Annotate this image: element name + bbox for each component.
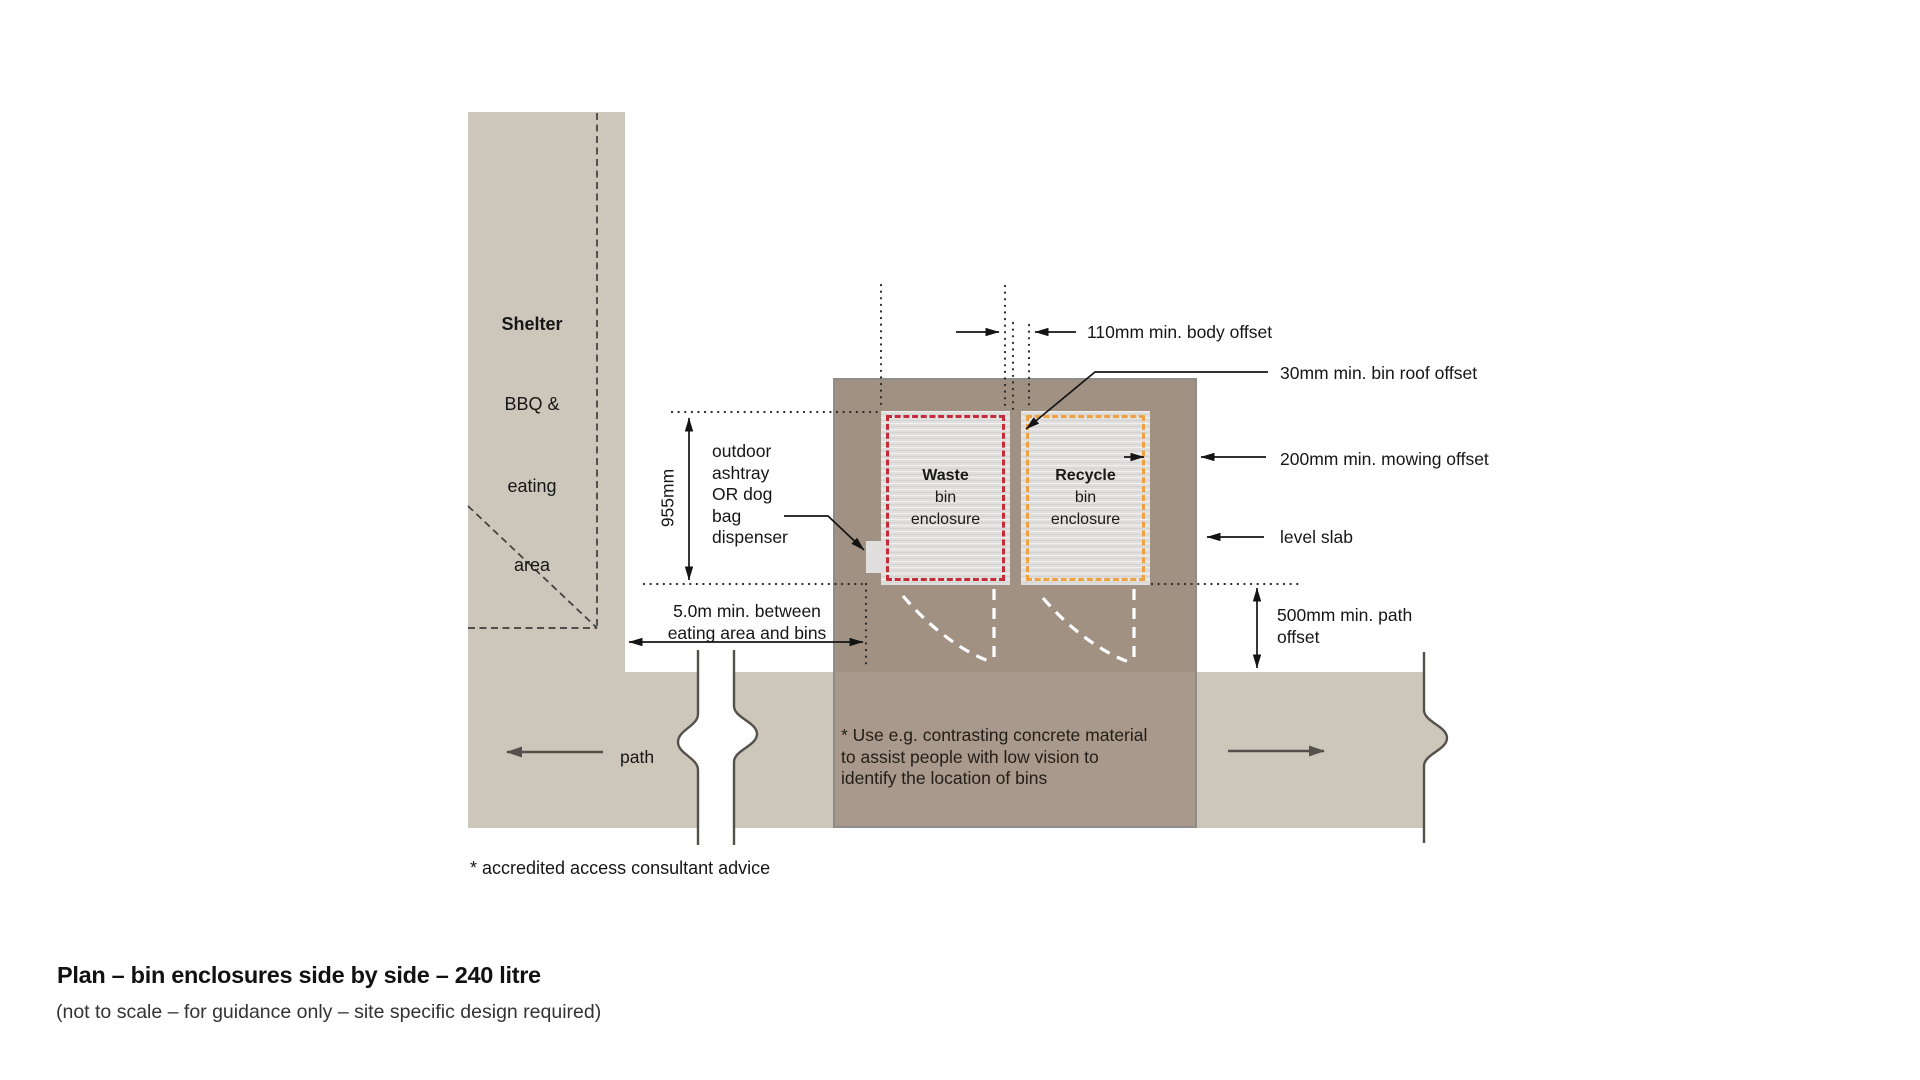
dim-200mm-label: 200mm min. mowing offset [1280, 449, 1489, 471]
plan-diagram-canvas: Waste bin enclosure Recycle bin enclosur… [0, 0, 1920, 1080]
waste-bin-label: Waste bin enclosure [911, 465, 980, 531]
recycle-bin-name: Recycle [1051, 465, 1120, 487]
shelter-eating-area [468, 112, 625, 672]
shelter-label-4: area [514, 555, 550, 577]
recycle-bin-enclosure: Recycle bin enclosure [1021, 411, 1150, 585]
dispenser-label: outdoor ashtray OR dog bag dispenser [712, 441, 788, 549]
ashtray-dispenser-unit [866, 541, 886, 573]
slab-contrast-note: * Use e.g. contrasting concrete material… [841, 725, 1147, 790]
level-slab-label: level slab [1280, 527, 1353, 549]
dim-5m-label: 5.0m min. between eating area and bins [668, 601, 827, 644]
dim-110mm-label: 110mm min. body offset [1087, 322, 1272, 344]
waste-bin-name: Waste [911, 465, 980, 487]
recycle-bin-line2: bin [1051, 487, 1120, 509]
path-break-right-lens [1424, 710, 1447, 766]
dim-500mm-label: 500mm min. path offset [1277, 604, 1412, 648]
recycle-bin-label: Recycle bin enclosure [1051, 465, 1120, 531]
waste-bin-enclosure: Waste bin enclosure [881, 411, 1010, 585]
footnote: * accredited access consultant advice [470, 858, 770, 880]
shelter-label-2: BBQ & [504, 394, 559, 416]
waste-bin-line3: enclosure [911, 509, 980, 531]
dim-30mm-label: 30mm min. bin roof offset [1280, 363, 1477, 385]
shelter-label-1: Shelter [501, 314, 562, 336]
shelter-label-3: eating [507, 476, 556, 498]
page-title: Plan – bin enclosures side by side – 240… [57, 965, 541, 987]
path-band-right [1197, 672, 1424, 828]
dim-955mm-label: 955mm [657, 469, 679, 527]
recycle-bin-line3: enclosure [1051, 509, 1120, 531]
waste-bin-line2: bin [911, 487, 980, 509]
page-subtitle: (not to scale – for guidance only – site… [56, 1002, 601, 1024]
path-label: path [620, 747, 654, 769]
